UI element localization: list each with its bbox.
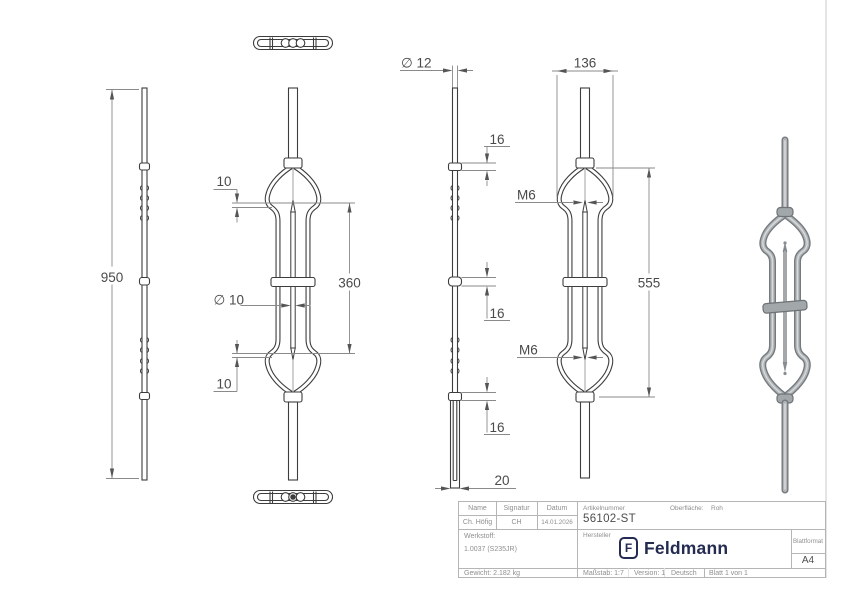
baluster-front2-body (559, 88, 611, 478)
dim-dia10: ∅ 10 (214, 293, 245, 308)
dim-dia12: ∅ 12 (401, 56, 432, 71)
feldmann-logo: F Feldmann (619, 533, 759, 563)
baluster-front-body (267, 88, 319, 480)
render-collar-top (777, 208, 793, 217)
werkstoff-value: 1.0037 (S235JR) (464, 546, 517, 553)
tb-divider (791, 553, 825, 554)
oberflaeche-value: Roh (711, 505, 723, 512)
title-block: Name Signatur Datum Ch. Höfig CH 14.01.2… (458, 501, 826, 578)
tb-divider (628, 568, 629, 577)
artikelnummer-label: Artikelnummer (583, 505, 625, 512)
hersteller-label: Hersteller (583, 532, 611, 539)
massstab-value: Maßstab: 1:7 (583, 570, 624, 577)
name-value: Ch. Höfig (459, 519, 496, 526)
tb-divider (459, 568, 825, 569)
artikelnummer-value: 56102-ST (583, 513, 636, 525)
tb-divider (704, 568, 705, 577)
tb-divider (577, 502, 578, 577)
center-band (271, 278, 315, 287)
plan-view-top (254, 37, 333, 50)
blatt-value: Blatt 1 von 1 (709, 570, 748, 577)
feldmann-logo-mark: F (619, 537, 638, 559)
view-front: 10 ∅ 10 360 10 (214, 37, 366, 504)
name-label: Name (459, 505, 496, 512)
dim-10-bottom: 10 (217, 377, 232, 392)
front-dim-lines (214, 190, 356, 392)
view-side-profile: 950 (97, 88, 150, 480)
signatur-label: Signatur (496, 505, 537, 512)
version-value: Version: 1 (634, 570, 665, 577)
datum-value: 14.01.2026 (537, 519, 577, 526)
signatur-value: CH (496, 519, 537, 526)
datum-label: Datum (537, 505, 577, 512)
dim-10-top: 10 (217, 174, 232, 189)
dim-m6-bottom: M6 (519, 343, 538, 358)
dim-16-top: 16 (490, 132, 505, 147)
render-3d (763, 140, 808, 490)
dim-555: 555 (638, 276, 661, 291)
flat-bar (140, 88, 150, 480)
dim-m6-top: M6 (517, 188, 536, 203)
tb-divider (459, 529, 825, 530)
sprache-value: Deutsch (671, 570, 697, 577)
werkstoff-label: Werkstoff: (464, 533, 495, 540)
blattformat-value: A4 (791, 555, 825, 566)
oberflaeche-label: Oberfläche: (670, 505, 704, 512)
feldmann-logo-wordmark: Feldmann (644, 538, 728, 559)
view-front-rotated: 136 M6 555 M6 (515, 56, 665, 479)
view-side: ∅ 12 16 16 16 20 (400, 56, 516, 491)
drawing-sheet: { "drawing": { "side_profile": { "height… (0, 0, 842, 595)
plan-view-bottom (254, 491, 333, 504)
dim-136: 136 (574, 56, 597, 71)
dim-16-mid: 16 (490, 306, 505, 321)
top-collar (284, 158, 302, 168)
round-bar-side (449, 88, 462, 488)
gewicht-value: Gewicht: 2.182 kg (464, 570, 520, 577)
dim-950-label: 950 (101, 270, 124, 285)
dim-16-bottom: 16 (490, 420, 505, 435)
dim-20: 20 (494, 473, 509, 488)
tb-divider (459, 515, 577, 516)
dim-360: 360 (338, 276, 361, 291)
blattformat-label: Blattformat (791, 538, 825, 545)
bottom-collar (284, 392, 302, 402)
